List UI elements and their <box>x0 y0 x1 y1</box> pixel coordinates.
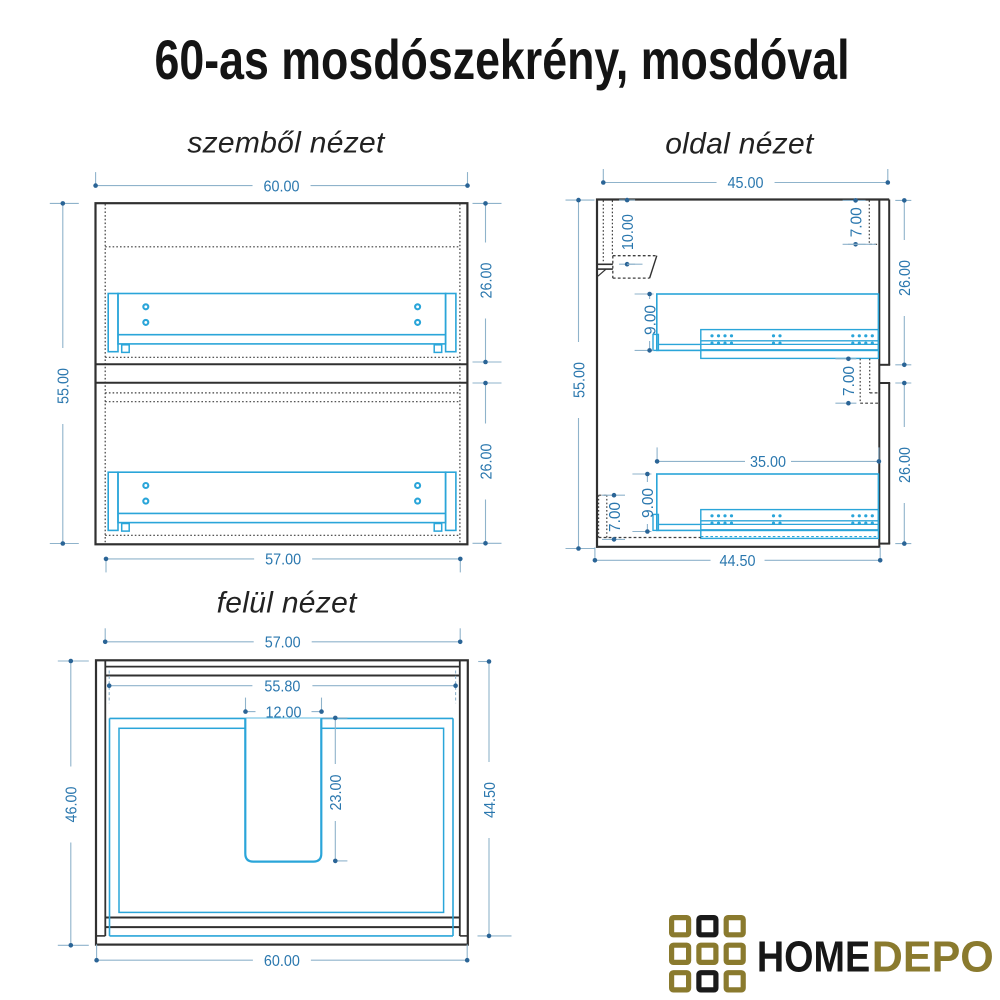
svg-text:7.00: 7.00 <box>841 366 858 396</box>
svg-text:9.00: 9.00 <box>642 305 659 335</box>
svg-text:DEPO: DEPO <box>872 933 994 982</box>
svg-text:44.50: 44.50 <box>482 782 499 818</box>
svg-text:felül nézet: felül nézet <box>217 586 358 619</box>
svg-text:7.00: 7.00 <box>607 502 624 532</box>
svg-text:55.00: 55.00 <box>56 368 73 404</box>
svg-text:23.00: 23.00 <box>328 774 345 810</box>
svg-text:HOME: HOME <box>757 933 870 982</box>
svg-text:26.00: 26.00 <box>478 262 495 298</box>
svg-text:45.00: 45.00 <box>728 175 764 192</box>
svg-text:46.00: 46.00 <box>64 786 81 822</box>
svg-text:44.50: 44.50 <box>720 553 756 570</box>
svg-text:57.00: 57.00 <box>265 552 301 569</box>
svg-text:57.00: 57.00 <box>265 635 301 652</box>
svg-text:26.00: 26.00 <box>897 447 914 483</box>
svg-text:55.80: 55.80 <box>264 678 300 695</box>
svg-text:26.00: 26.00 <box>478 443 495 479</box>
svg-text:60-as mosdószekrény, mosdóval: 60-as mosdószekrény, mosdóval <box>155 28 850 91</box>
svg-text:60.00: 60.00 <box>264 953 300 970</box>
svg-text:oldal nézet: oldal nézet <box>665 127 815 160</box>
svg-text:26.00: 26.00 <box>897 260 914 296</box>
svg-text:9.00: 9.00 <box>640 488 657 518</box>
svg-text:60.00: 60.00 <box>264 178 300 195</box>
svg-text:55.00: 55.00 <box>571 362 588 398</box>
svg-text:szemből nézet: szemből nézet <box>187 127 386 160</box>
svg-text:35.00: 35.00 <box>750 454 786 471</box>
svg-text:10.00: 10.00 <box>620 214 637 250</box>
svg-text:7.00: 7.00 <box>848 207 865 237</box>
